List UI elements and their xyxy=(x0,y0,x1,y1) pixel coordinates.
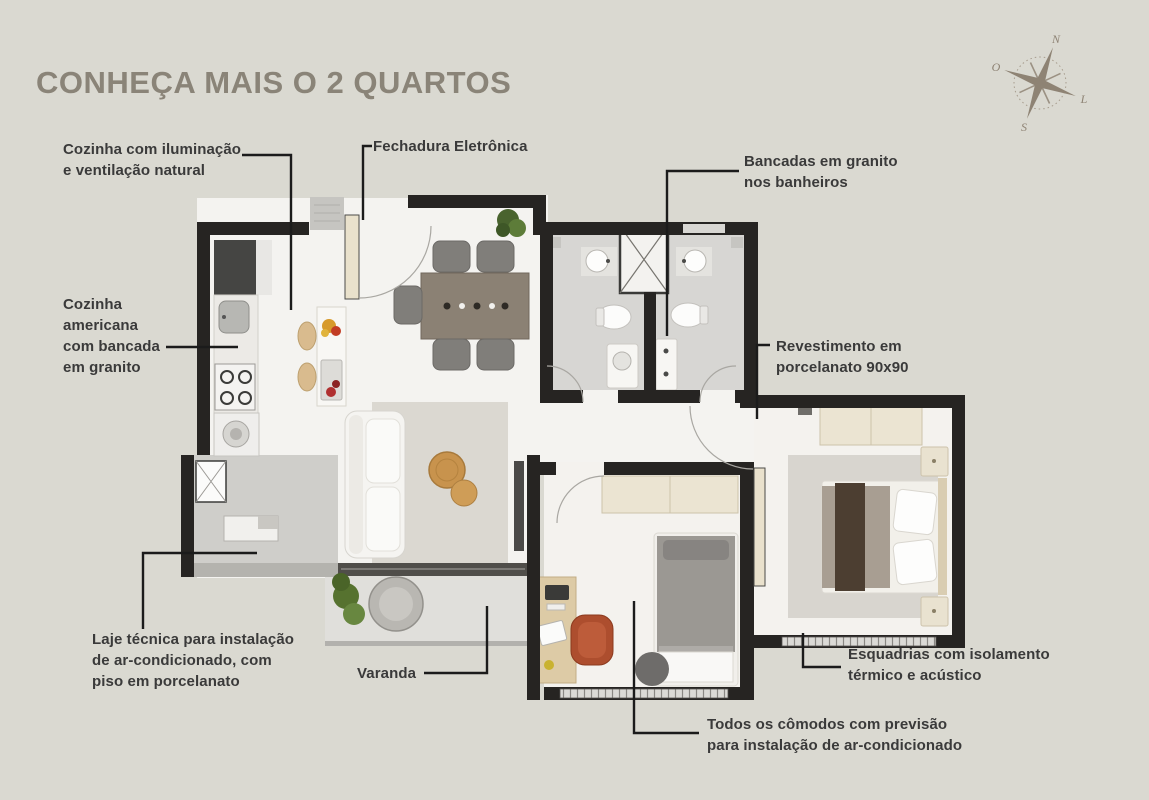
living-room xyxy=(345,402,524,563)
bathroom-sink xyxy=(586,250,608,272)
bathroom-counter xyxy=(656,339,677,390)
dining-chair xyxy=(477,339,514,370)
balcony-railing xyxy=(325,641,527,646)
label-granite-countertops: Bancadas em granito nos banheiros xyxy=(744,151,898,193)
master-door xyxy=(754,468,765,586)
label-kitchen-lighting: Cozinha com iluminação e ventilação natu… xyxy=(63,139,241,181)
entrance-door xyxy=(345,215,359,299)
label-american-kitchen: Cozinha americana com bancada em granito xyxy=(63,294,160,378)
pouf xyxy=(635,652,669,686)
monitor xyxy=(545,585,569,600)
label-technical-slab: Laje técnica para instalação de ar-condi… xyxy=(92,629,294,692)
label-porcelain-tiles: Revestimento em porcelanato 90x90 xyxy=(776,336,909,378)
bathroom-sink xyxy=(684,250,706,272)
label-window-frames: Esquadrias com isolamento térmico e acús… xyxy=(848,644,1050,686)
tv-panel xyxy=(514,461,524,551)
dining-chair xyxy=(394,286,422,324)
label-electronic-lock: Fechadura Eletrônica xyxy=(373,136,528,157)
dining-chair xyxy=(433,339,470,370)
dining-chair xyxy=(477,241,514,272)
stool xyxy=(298,363,316,391)
bedroom-window xyxy=(560,689,728,698)
coffee-table xyxy=(451,480,477,506)
marketing-floorplan-page: { "title": "CONHEÇA MAIS O 2 QUARTOS", "… xyxy=(0,0,1149,800)
bathroom-window xyxy=(683,224,725,233)
label-ac-provision: Todos os cômodos com previsão para insta… xyxy=(707,714,962,756)
dining-chair xyxy=(433,241,470,272)
stool xyxy=(298,322,316,350)
label-balcony: Varanda xyxy=(357,663,416,684)
